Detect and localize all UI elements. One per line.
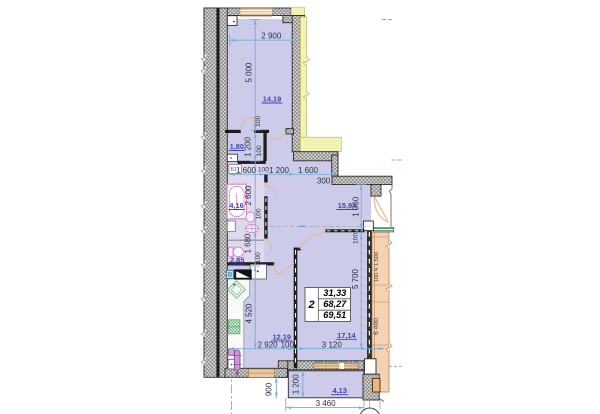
svg-text:4,16: 4,16	[229, 201, 243, 210]
svg-text:14,19: 14,19	[263, 95, 282, 104]
svg-text:5 700: 5 700	[351, 268, 360, 289]
svg-text:1,80: 1,80	[230, 142, 244, 151]
svg-text:100: 100	[258, 166, 269, 173]
svg-text:17,14: 17,14	[337, 331, 356, 340]
svg-text:100: 100	[255, 208, 262, 219]
svg-text:100: 100	[281, 341, 295, 350]
svg-text:Б1: Б1	[231, 167, 237, 173]
svg-text:1 600: 1 600	[298, 166, 319, 175]
svg-text:100: 100	[256, 145, 263, 156]
svg-text:3 120: 3 120	[322, 341, 343, 350]
svg-text:2: 2	[307, 299, 314, 311]
svg-text:100: 100	[255, 252, 262, 263]
svg-text:1 600: 1 600	[236, 166, 257, 175]
svg-text:2 900: 2 900	[261, 32, 282, 41]
svg-text:3 460: 3 460	[316, 399, 337, 408]
svg-text:5 000: 5 000	[245, 62, 254, 83]
svg-text:1 200: 1 200	[244, 136, 253, 157]
svg-text:6 400: 6 400	[373, 318, 380, 335]
svg-text:300: 300	[317, 177, 331, 186]
svg-text:68,27: 68,27	[323, 299, 347, 309]
svg-text:100 Ч 1.500: 100 Ч 1.500	[374, 252, 380, 282]
svg-text:2,85: 2,85	[230, 256, 244, 265]
svg-text:4 520: 4 520	[244, 303, 253, 324]
svg-text:900: 900	[265, 382, 274, 396]
svg-text:4,13: 4,13	[333, 386, 347, 395]
svg-text:1 680: 1 680	[244, 233, 253, 254]
svg-text:31,33: 31,33	[323, 288, 346, 298]
svg-text:2 920: 2 920	[258, 341, 279, 350]
svg-text:1 200: 1 200	[292, 374, 301, 395]
svg-text:69,51: 69,51	[323, 310, 346, 320]
svg-text:1 200: 1 200	[269, 166, 290, 175]
svg-text:15,94: 15,94	[338, 201, 357, 210]
svg-text:2 600: 2 600	[244, 185, 253, 206]
svg-text:100: 100	[353, 233, 360, 244]
svg-text:100: 100	[255, 115, 262, 126]
svg-text:12,19: 12,19	[272, 332, 291, 341]
